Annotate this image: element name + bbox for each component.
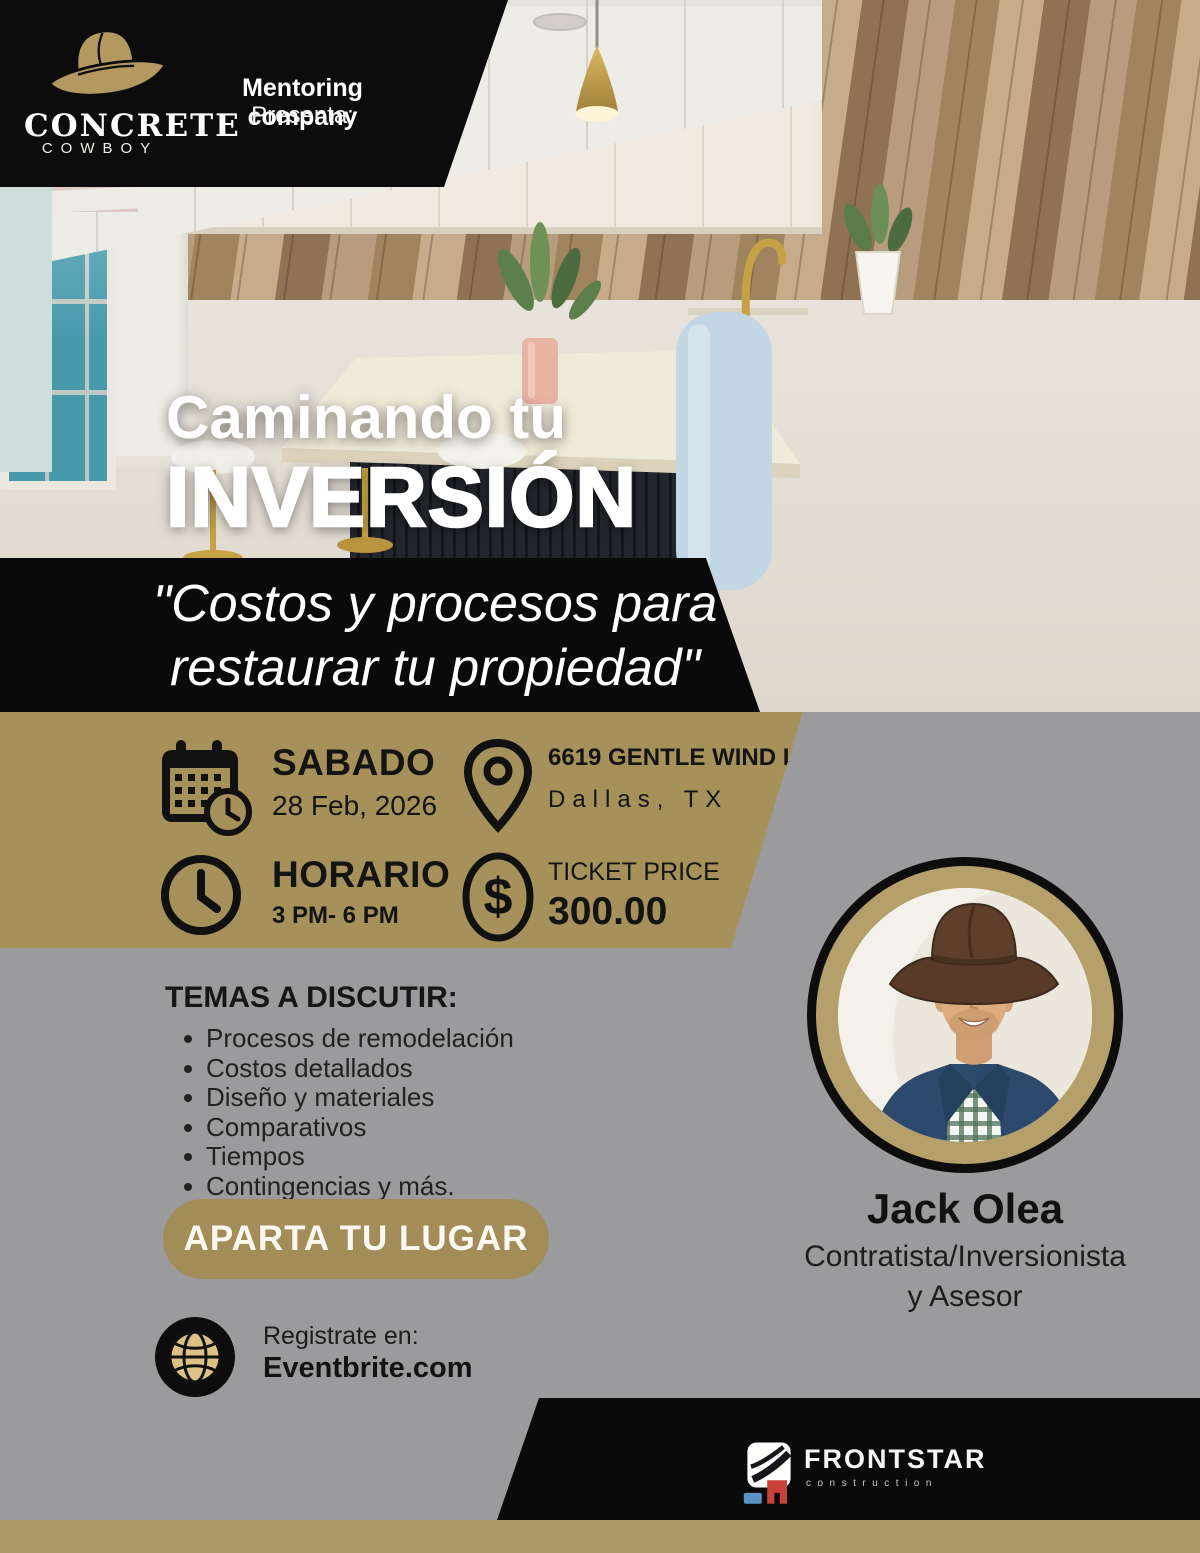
quote-text: "Costos y procesos para restaurar tu pro… xyxy=(130,572,740,700)
speaker-role-line2: y Asesor xyxy=(770,1280,1160,1314)
ceiling-light xyxy=(534,14,586,30)
register-site-link[interactable]: Eventbrite.com xyxy=(263,1352,473,1385)
footer-logo-subtext: construction xyxy=(806,1478,938,1489)
hero-title-line1: Caminando tu xyxy=(166,386,637,450)
globe-icon-wrap xyxy=(155,1317,235,1397)
quote-line1: "Costos y procesos para xyxy=(130,572,740,636)
day-label: SABADO xyxy=(272,742,435,784)
footer-band: FRONTSTAR construction xyxy=(0,1398,1200,1520)
speaker-name: Jack Olea xyxy=(780,1185,1150,1233)
reserve-button[interactable]: APARTA TU LUGAR xyxy=(163,1199,549,1279)
svg-text:$: $ xyxy=(484,868,513,926)
presenter-line2: Presenta: xyxy=(185,102,420,130)
counter-plant xyxy=(838,184,917,314)
topic-item: Procesos de remodelación xyxy=(206,1024,514,1054)
hero-title: Caminando tu INVERSIÓN xyxy=(166,386,637,544)
topic-item: Comparativos xyxy=(206,1113,514,1143)
topic-item: Diseño y materiales xyxy=(206,1083,514,1113)
quote-line2: restaurar tu propiedad" xyxy=(130,636,740,700)
event-date: 28 Feb, 2026 xyxy=(272,790,437,822)
address-line2: Dallas, TX xyxy=(548,786,728,814)
topic-item: Tiempos xyxy=(206,1142,514,1172)
topics-list: Procesos de remodelación Costos detallad… xyxy=(172,1024,514,1201)
speaker-photo-frame xyxy=(807,857,1123,1173)
topics-heading: TEMAS A DISCUTIR: xyxy=(165,981,458,1015)
clock-icon xyxy=(158,852,244,938)
speaker-portrait xyxy=(838,888,1092,1142)
register-label: Registrate en: xyxy=(263,1322,419,1351)
hero-title-line2: INVERSIÓN xyxy=(166,450,637,544)
footer-gold-strip xyxy=(0,1520,1200,1553)
speaker-photo xyxy=(838,888,1092,1142)
event-flyer: Caminando tu INVERSIÓN "Costos y proceso… xyxy=(0,0,1200,1553)
calendar-clock-icon xyxy=(158,738,254,840)
location-pin-icon xyxy=(463,738,533,834)
cowboy-hat-icon xyxy=(42,18,170,106)
footer-logo-text: FRONTSTAR xyxy=(804,1444,986,1475)
frontstar-logo-icon xyxy=(742,1440,796,1508)
price-value: 300.00 xyxy=(548,890,667,934)
dollar-icon: $ xyxy=(460,850,536,944)
topic-item: Costos detallados xyxy=(206,1054,514,1084)
price-label: TICKET PRICE xyxy=(548,858,720,887)
globe-icon xyxy=(166,1328,224,1386)
brand-logo-title: CONCRETE xyxy=(24,108,176,144)
speaker-photo-gold-ring xyxy=(816,866,1114,1164)
schedule-time: 3 PM- 6 PM xyxy=(272,902,399,930)
pendant-lamp xyxy=(576,46,618,112)
gold-faucet xyxy=(746,243,782,314)
brand-logo-subtitle: COWBOY xyxy=(24,140,176,157)
address-line1: 6619 GENTLE WIND LN xyxy=(548,744,815,772)
schedule-label: HORARIO xyxy=(272,854,450,896)
speaker-role-line1: Contratista/Inversionista xyxy=(770,1240,1160,1274)
topic-item: Contingencias y más. xyxy=(206,1172,514,1202)
